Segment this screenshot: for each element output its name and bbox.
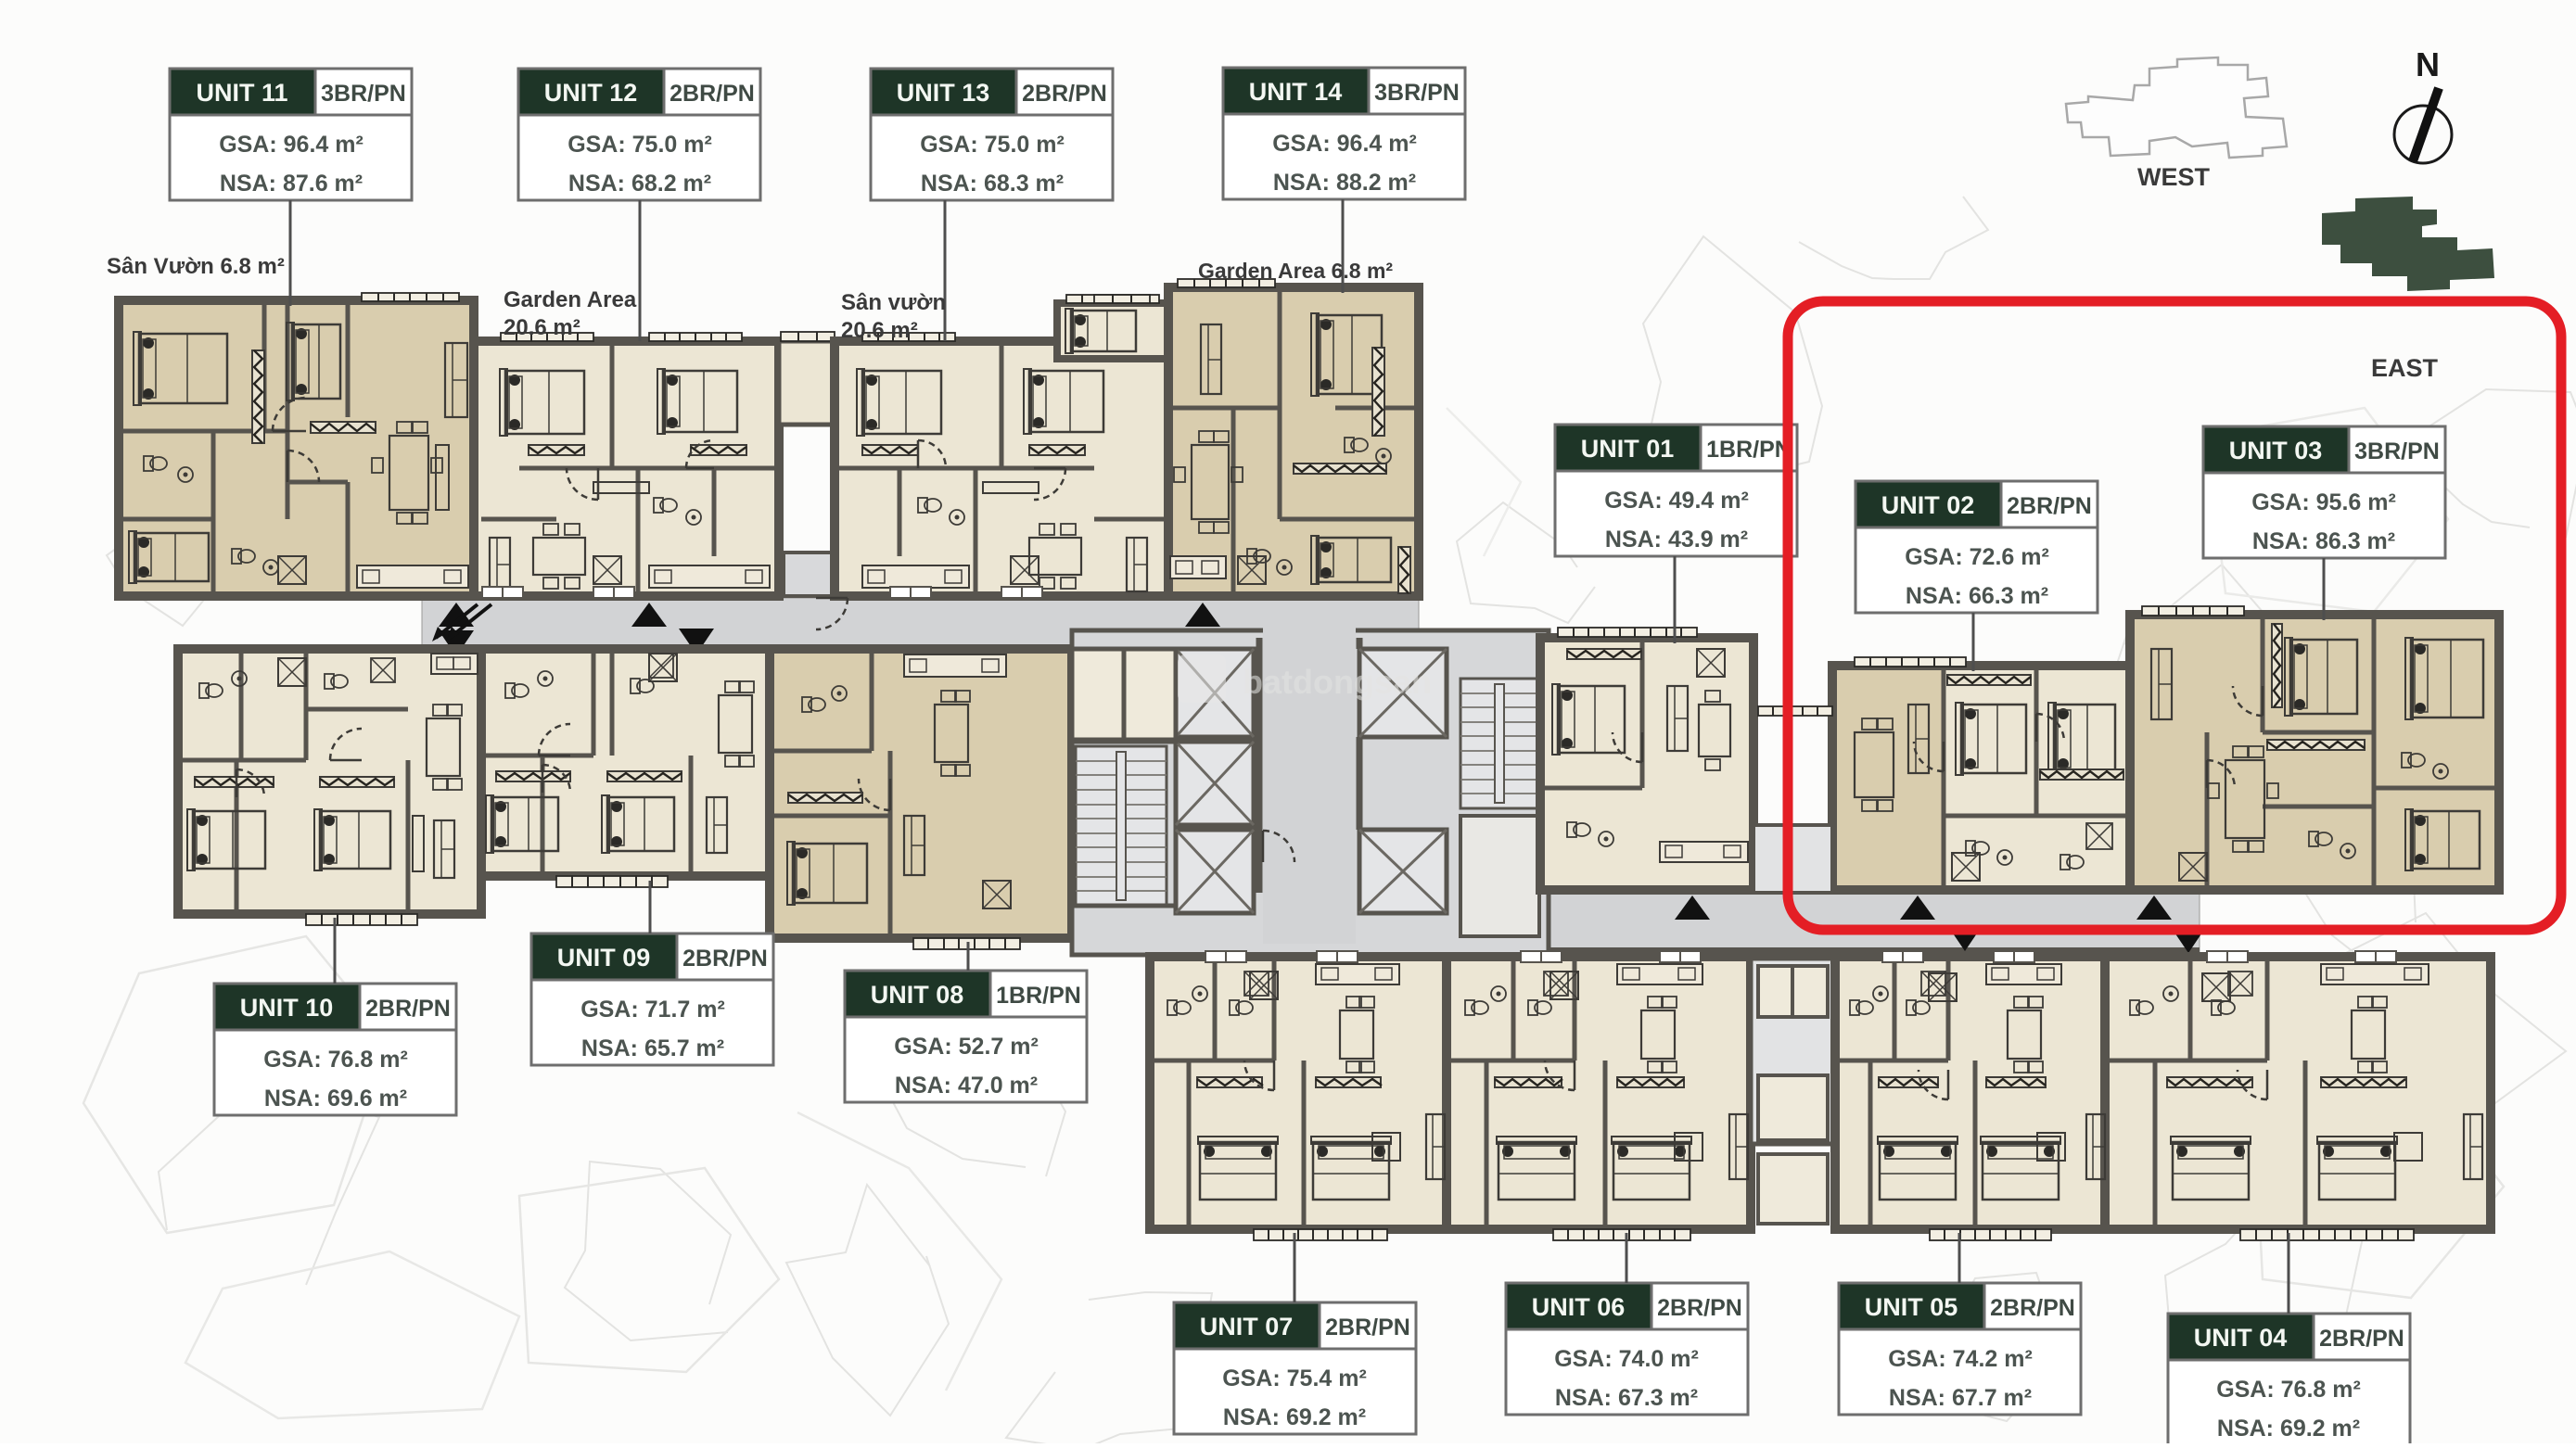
svg-text:GSA: 52.7 m²: GSA: 52.7 m² xyxy=(894,1034,1039,1060)
svg-text:UNIT 11: UNIT 11 xyxy=(196,79,287,107)
svg-text:GSA: 74.2 m²: GSA: 74.2 m² xyxy=(1888,1346,2033,1372)
svg-text:WEST: WEST xyxy=(2137,163,2211,191)
svg-text:GSA: 74.0 m²: GSA: 74.0 m² xyxy=(1554,1346,1699,1372)
svg-text:NSA: 67.3 m²: NSA: 67.3 m² xyxy=(1555,1385,1698,1411)
svg-text:2BR/PN: 2BR/PN xyxy=(1325,1315,1410,1340)
svg-text:UNIT 06: UNIT 06 xyxy=(1532,1293,1626,1321)
svg-text:NSA: 68.3 m²: NSA: 68.3 m² xyxy=(921,171,1064,197)
svg-text:UNIT 13: UNIT 13 xyxy=(897,79,990,107)
svg-text:GSA: 76.8 m²: GSA: 76.8 m² xyxy=(2216,1377,2361,1403)
svg-text:NSA: 68.2 m²: NSA: 68.2 m² xyxy=(568,171,711,197)
svg-text:NSA: 66.3 m²: NSA: 66.3 m² xyxy=(1906,583,2048,609)
svg-text:2BR/PN: 2BR/PN xyxy=(682,946,768,972)
svg-text:EAST: EAST xyxy=(2371,354,2439,382)
svg-text:1BR/PN: 1BR/PN xyxy=(996,983,1081,1009)
svg-text:20.6 m²: 20.6 m² xyxy=(841,318,918,343)
svg-text:Sân vườn: Sân vườn xyxy=(841,290,946,315)
svg-text:NSA: 43.9 m²: NSA: 43.9 m² xyxy=(1605,527,1748,553)
svg-text:2BR/PN: 2BR/PN xyxy=(670,81,755,107)
svg-text:UNIT 03: UNIT 03 xyxy=(2229,437,2323,464)
svg-text:UNIT 14: UNIT 14 xyxy=(1249,78,1343,106)
svg-text:GSA: 75.0 m²: GSA: 75.0 m² xyxy=(567,132,712,158)
svg-text:UNIT 07: UNIT 07 xyxy=(1200,1313,1294,1340)
svg-text:NSA: 88.2 m²: NSA: 88.2 m² xyxy=(1273,170,1416,196)
svg-text:NSA: 86.3 m²: NSA: 86.3 m² xyxy=(2252,528,2395,554)
svg-text:GSA: 96.4 m²: GSA: 96.4 m² xyxy=(219,132,363,158)
svg-text:GSA: 72.6 m²: GSA: 72.6 m² xyxy=(1905,544,2049,570)
svg-text:UNIT 09: UNIT 09 xyxy=(557,944,651,972)
svg-text:NSA: 69.6 m²: NSA: 69.6 m² xyxy=(264,1086,407,1111)
svg-text:GSA: 71.7 m²: GSA: 71.7 m² xyxy=(580,997,725,1022)
svg-text:batdongsan: batdongsan xyxy=(1243,663,1432,701)
svg-text:UNIT 05: UNIT 05 xyxy=(1865,1293,1958,1321)
svg-text:3BR/PN: 3BR/PN xyxy=(2354,438,2440,464)
svg-text:UNIT 04: UNIT 04 xyxy=(2194,1324,2288,1352)
svg-text:Garden Area: Garden Area xyxy=(504,287,637,312)
svg-text:20.6 m²: 20.6 m² xyxy=(504,315,580,340)
svg-text:Garden Area 6.8 m²: Garden Area 6.8 m² xyxy=(1198,259,1393,283)
svg-text:N: N xyxy=(2416,45,2440,83)
svg-text:UNIT 08: UNIT 08 xyxy=(871,981,964,1009)
svg-text:NSA: 67.7 m²: NSA: 67.7 m² xyxy=(1889,1385,2032,1411)
svg-text:GSA: 95.6 m²: GSA: 95.6 m² xyxy=(2251,489,2396,515)
svg-text:GSA: 49.4 m²: GSA: 49.4 m² xyxy=(1604,488,1749,514)
svg-text:UNIT 12: UNIT 12 xyxy=(544,79,638,107)
svg-text:1BR/PN: 1BR/PN xyxy=(1706,437,1792,463)
svg-text:GSA: 75.4 m²: GSA: 75.4 m² xyxy=(1222,1365,1367,1391)
svg-text:3BR/PN: 3BR/PN xyxy=(1374,80,1460,106)
svg-text:2BR/PN: 2BR/PN xyxy=(2319,1326,2404,1352)
svg-text:UNIT 10: UNIT 10 xyxy=(240,994,334,1022)
svg-text:2BR/PN: 2BR/PN xyxy=(365,996,451,1022)
svg-text:GSA: 76.8 m²: GSA: 76.8 m² xyxy=(263,1047,408,1073)
svg-text:NSA: 47.0 m²: NSA: 47.0 m² xyxy=(895,1073,1038,1099)
svg-text:GSA: 96.4 m²: GSA: 96.4 m² xyxy=(1272,131,1417,157)
svg-text:NSA: 65.7 m²: NSA: 65.7 m² xyxy=(581,1035,724,1061)
svg-text:UNIT 01: UNIT 01 xyxy=(1581,435,1675,463)
svg-text:UNIT 02: UNIT 02 xyxy=(1881,491,1975,519)
svg-text:NSA: 87.6 m²: NSA: 87.6 m² xyxy=(220,171,363,197)
svg-text:2BR/PN: 2BR/PN xyxy=(1990,1295,2075,1321)
svg-text:NSA: 69.2 m²: NSA: 69.2 m² xyxy=(2217,1416,2360,1442)
svg-text:Sân Vườn 6.8 m²: Sân Vườn 6.8 m² xyxy=(107,254,285,279)
svg-text:3BR/PN: 3BR/PN xyxy=(321,81,406,107)
svg-text:NSA: 69.2 m²: NSA: 69.2 m² xyxy=(1223,1404,1366,1430)
svg-text:2BR/PN: 2BR/PN xyxy=(1022,81,1107,107)
svg-text:2BR/PN: 2BR/PN xyxy=(2007,493,2092,519)
svg-text:2BR/PN: 2BR/PN xyxy=(1657,1295,1742,1321)
svg-text:GSA: 75.0 m²: GSA: 75.0 m² xyxy=(920,132,1065,158)
